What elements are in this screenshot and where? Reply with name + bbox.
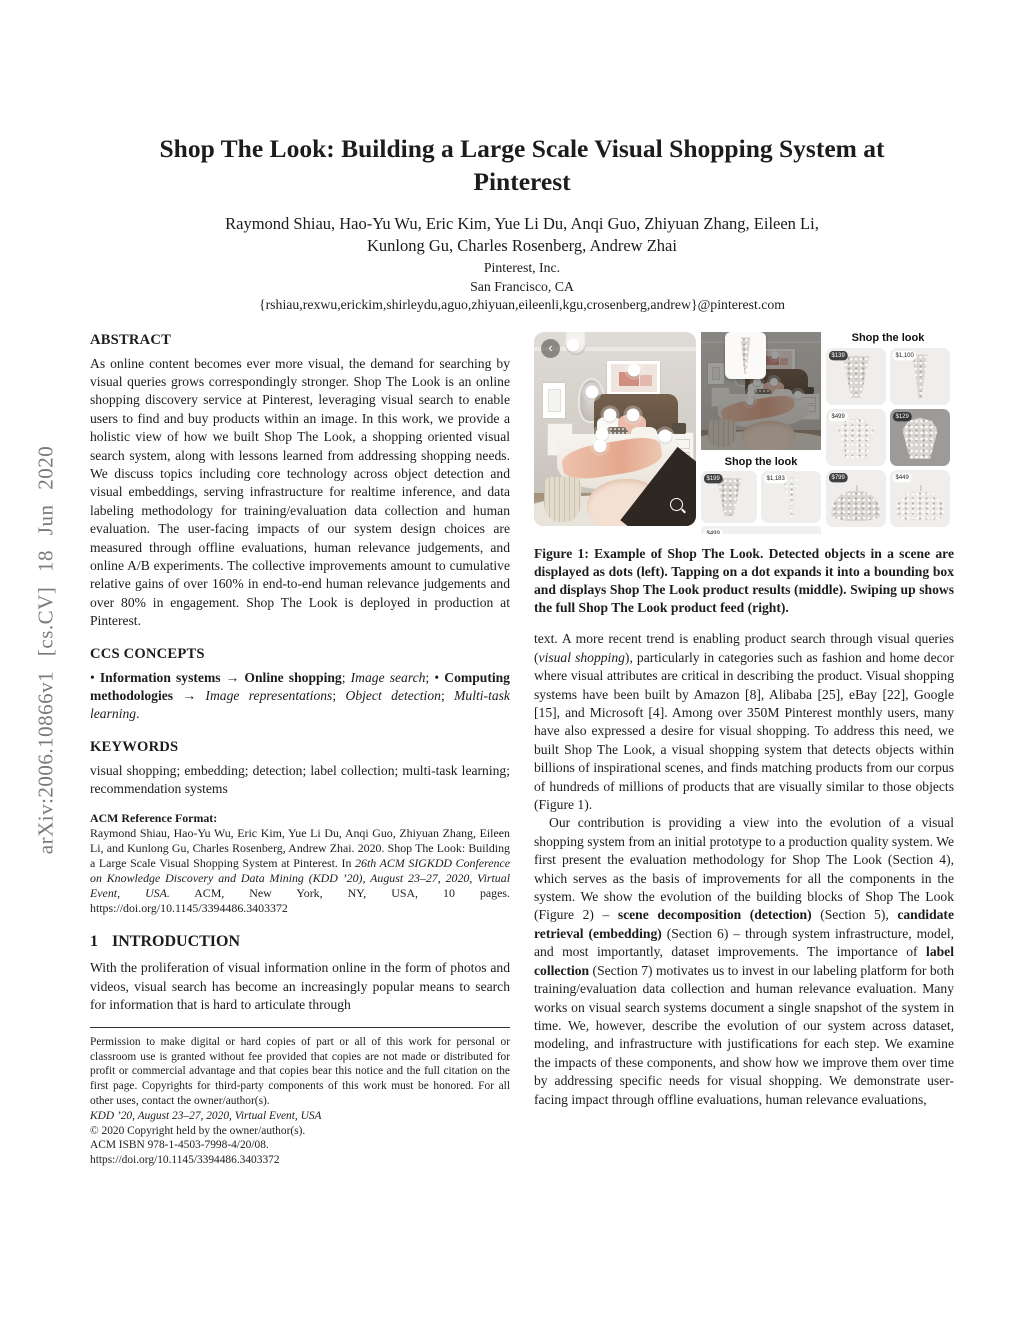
arxiv-sidebar-label: arXiv:2006.10866v1 [cs.CV] 18 Jun 2020 <box>34 446 59 854</box>
permission-notice: Permission to make digital or hard copie… <box>90 1035 510 1109</box>
chandelier-image <box>835 418 877 459</box>
object-dot <box>626 408 639 421</box>
chandelier-image <box>713 478 745 516</box>
chandelier-image <box>903 354 937 398</box>
left-column: ABSTRACT As online content becomes ever … <box>90 332 510 1169</box>
right-column: ‹ <box>534 332 954 1169</box>
figure-left-screenshot: ‹ <box>534 332 696 526</box>
acm-reference-heading: ACM Reference Format: <box>90 811 510 826</box>
price-badge: $1,183 <box>764 474 787 483</box>
keywords-text: visual shopping; embedding; detection; l… <box>90 762 510 799</box>
affiliation: Pinterest, Inc. <box>90 259 954 277</box>
search-lens-icon <box>670 498 683 511</box>
object-dot <box>659 430 672 443</box>
product-card: $499 <box>826 409 886 466</box>
chandelier-image <box>899 418 941 459</box>
wall-art-left <box>542 382 566 419</box>
chandelier-image <box>839 356 874 398</box>
product-results: $199 $1,183 <box>701 471 821 523</box>
doi-line: https://doi.org/10.1145/3394486.3403372 <box>90 1153 510 1168</box>
object-dot <box>566 339 579 352</box>
price-badge: $1,100 <box>893 351 916 360</box>
keywords-heading: KEYWORDS <box>90 739 510 756</box>
price-badge: $199 <box>704 474 722 483</box>
product-card: $1,183 <box>761 471 821 523</box>
copyright-line: © 2020 Copyright held by the owner/autho… <box>90 1124 510 1139</box>
acm-doi-link[interactable]: https://doi.org/10.1145/3394486.3403372 <box>90 901 288 915</box>
paper-content: Shop The Look: Building a Large Scale Vi… <box>90 133 954 1168</box>
figure-1-caption: Figure 1: Example of Shop The Look. Dete… <box>534 545 954 618</box>
ccs-heading: CCS CONCEPTS <box>90 646 510 663</box>
object-dot <box>628 364 641 377</box>
chandelier-image <box>831 491 880 521</box>
figure-middle-screenshot <box>701 332 821 450</box>
email-line[interactable]: {rshiau,rexwu,erickim,shirleydu,aguo,zhi… <box>90 296 954 314</box>
product-card: $129 <box>890 409 950 466</box>
shop-the-look-header: Shop the look <box>826 332 950 344</box>
footnote-rule <box>90 1027 510 1028</box>
author-list: Raymond Shiau, Hao-Yu Wu, Eric Kim, Yue … <box>90 213 954 256</box>
paper-title: Shop The Look: Building a Large Scale Vi… <box>130 133 914 198</box>
section-1-heading: 1INTRODUCTION <box>90 933 510 951</box>
acm-reference: ACM Reference Format: Raymond Shiau, Hao… <box>90 811 510 917</box>
affiliation-block: Pinterest, Inc. San Francisco, CA {rshia… <box>90 259 954 314</box>
footnote-doi-link[interactable]: https://doi.org/10.1145/3394486.3403372 <box>90 1154 280 1166</box>
product-card: $1,100 <box>890 348 950 405</box>
location: San Francisco, CA <box>90 278 954 296</box>
intro-paragraph-2: text. A more recent trend is enabling pr… <box>534 630 954 814</box>
abstract-text: As online content becomes ever more visu… <box>90 355 510 631</box>
figure-1: ‹ <box>534 332 954 532</box>
price-badge: $499 <box>829 412 847 421</box>
price-badge: $129 <box>893 412 911 421</box>
object-dot <box>586 385 599 398</box>
product-card: $449 <box>890 470 950 527</box>
back-arrow-icon: ‹ <box>548 341 552 354</box>
chandelier-image <box>895 491 944 521</box>
product-card: $199 <box>701 471 757 523</box>
intro-text: With the proliferation of visual informa… <box>90 959 510 1014</box>
abstract-heading: ABSTRACT <box>90 332 510 349</box>
isbn-line: ACM ISBN 978-1-4503-7998-4/20/08. <box>90 1138 510 1153</box>
object-dot <box>594 440 607 453</box>
shop-the-look-label: Shop the look <box>701 456 821 468</box>
price-badge: $449 <box>893 473 911 482</box>
nightstand-object <box>672 423 687 435</box>
intro-paragraph-3: Our contribution is providing a view int… <box>534 814 954 1109</box>
price-badge: $499 <box>704 529 722 534</box>
chandelier-thumbnail <box>734 337 757 374</box>
product-card: $799 <box>826 470 886 527</box>
lens-button <box>664 493 688 517</box>
product-card: $139 <box>826 348 886 405</box>
product-feed-grid: $139 $1,100 $499 <box>826 348 950 527</box>
price-badge: $799 <box>829 473 847 482</box>
authors-line2: Kunlong Gu, Charles Rosenberg, Andrew Zh… <box>90 235 954 256</box>
expanded-object-card <box>725 332 766 379</box>
paper-page: arXiv:2006.10866v1 [cs.CV] 18 Jun 2020 S… <box>0 0 1024 1325</box>
footnote-block: Permission to make digital or hard copie… <box>90 1035 510 1168</box>
product-card-partial: $499 <box>701 526 821 534</box>
object-dot <box>604 408 617 421</box>
ccs-text: • Information systems → Online shopping;… <box>90 669 510 724</box>
authors-line1: Raymond Shiau, Hao-Yu Wu, Eric Kim, Yue … <box>90 213 954 234</box>
basket <box>544 477 581 522</box>
art-roof-shape <box>640 375 652 386</box>
price-badge: $139 <box>829 351 847 360</box>
venue-line: KDD ’20, August 23–27, 2020, Virtual Eve… <box>90 1109 510 1124</box>
figure-right-screenshot: Shop the look $139 $1,100 $499 <box>826 332 950 532</box>
back-button: ‹ <box>541 339 560 358</box>
